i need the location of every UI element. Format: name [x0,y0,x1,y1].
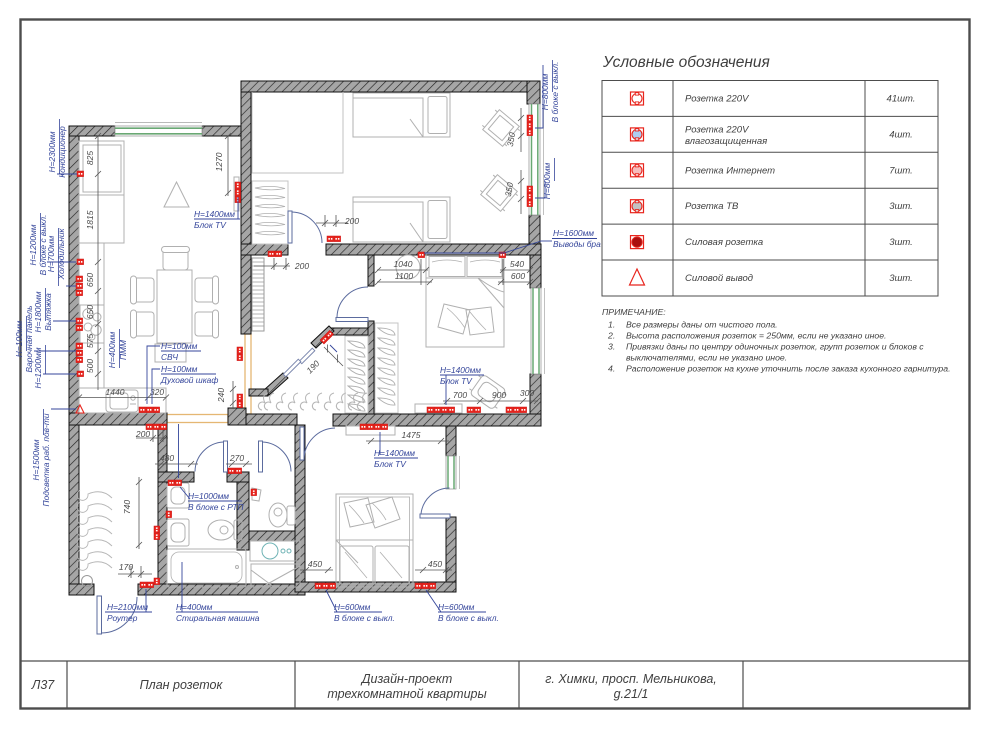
svg-text:700: 700 [453,390,467,400]
svg-text:g.21/1: g.21/1 [614,687,649,701]
svg-text:Л37: Л37 [31,678,56,692]
svg-text:900: 900 [492,390,506,400]
svg-text:В блоке с РТП: В блоке с РТП [188,502,245,512]
svg-text:170: 170 [119,562,133,572]
svg-text:Холодильник: Холодильник [56,228,66,281]
svg-text:Роутер: Роутер [107,613,138,623]
svg-text:H=800мм: H=800мм [540,74,550,111]
svg-text:СВЧ: СВЧ [161,352,178,362]
svg-text:В блоке с выкл.: В блоке с выкл. [550,62,560,123]
svg-text:влагозащищенная: влагозащищенная [685,136,767,147]
svg-text:240: 240 [216,388,226,403]
svg-text:Блок TV: Блок TV [374,459,407,469]
svg-text:H=100мм: H=100мм [161,364,198,374]
svg-text:Высота расположения розеток =: Высота расположения розеток = 250мм, есл… [626,331,886,341]
svg-text:H=700мм: H=700мм [46,236,56,273]
svg-text:1815: 1815 [85,210,95,229]
svg-text:41шт.: 41шт. [887,94,916,105]
svg-text:7шт.: 7шт. [889,165,913,176]
svg-text:3шт.: 3шт. [889,201,913,212]
svg-text:H=2100мм: H=2100мм [107,602,148,612]
svg-text:Силовая розетка: Силовая розетка [685,237,763,248]
svg-text:H=1400мм: H=1400мм [194,209,235,219]
svg-text:575: 575 [85,334,95,348]
svg-text:ПРИМЕЧАНИЕ:: ПРИМЕЧАНИЕ: [602,307,666,317]
svg-text:трехкомнатной квартиры: трехкомнатной квартиры [327,687,486,701]
svg-text:2.: 2. [607,331,615,341]
svg-text:650: 650 [85,305,95,319]
svg-text:1475: 1475 [402,430,421,440]
svg-text:H=100мм: H=100мм [14,321,24,358]
svg-text:650: 650 [85,273,95,287]
svg-text:Блок TV: Блок TV [194,220,227,230]
svg-text:H=1600мм: H=1600мм [553,228,594,238]
svg-text:270: 270 [229,453,244,463]
svg-text:1270: 1270 [214,152,224,171]
svg-text:Стиральная машина: Стиральная машина [176,613,260,623]
svg-text:Розетка Интернет: Розетка Интернет [685,165,775,176]
svg-text:H=600мм: H=600мм [334,602,371,612]
svg-text:1440: 1440 [106,387,125,397]
svg-text:Блок TV: Блок TV [440,376,473,386]
svg-text:350: 350 [505,131,517,147]
svg-text:Вытяжка: Вытяжка [43,293,53,331]
svg-text:350: 350 [503,181,515,197]
svg-text:Розетка 220V: Розетка 220V [685,125,750,136]
svg-text:H=100мм: H=100мм [161,341,198,351]
svg-text:План розеток: План розеток [140,678,224,692]
svg-text:200: 200 [294,261,309,271]
svg-text:H=1000мм: H=1000мм [188,491,229,501]
svg-text:Расположение розеток на кухне: Расположение розеток на кухне уточнить п… [626,364,951,374]
svg-text:450: 450 [308,559,322,569]
svg-text:190: 190 [304,358,321,375]
svg-text:Выводы бра: Выводы бра [553,239,601,249]
svg-text:H=2300мм: H=2300мм [47,131,57,172]
svg-text:500: 500 [85,359,95,373]
svg-text:H=1500мм: H=1500мм [31,439,41,480]
svg-text:3шт.: 3шт. [889,237,913,248]
svg-text:4шт.: 4шт. [889,129,913,140]
svg-text:3.: 3. [608,342,615,352]
svg-text:Духовой шкаф: Духовой шкаф [160,375,218,385]
svg-text:540: 540 [510,259,524,269]
svg-text:H=400мм: H=400мм [107,332,117,369]
svg-text:H=1800мм: H=1800мм [33,291,43,332]
svg-text:H=1200мм: H=1200мм [33,347,43,388]
svg-text:Силовой вывод: Силовой вывод [685,273,753,284]
svg-text:Привязки даны по центру одиноч: Привязки даны по центру одиночных розето… [626,342,924,352]
svg-text:300: 300 [520,388,534,398]
svg-text:1040: 1040 [394,259,413,269]
svg-text:г. Химки, просп. Мельникова,: г. Химки, просп. Мельникова, [545,672,717,686]
svg-text:3шт.: 3шт. [889,273,913,284]
svg-text:1.: 1. [608,320,615,330]
svg-text:H=800мм: H=800мм [542,163,552,200]
svg-text:740: 740 [122,500,132,514]
svg-text:Розетка ТВ: Розетка ТВ [685,201,739,212]
svg-text:Дизайн-проект: Дизайн-проект [360,672,453,686]
svg-text:1100: 1100 [395,271,414,281]
svg-text:200: 200 [135,429,150,439]
svg-text:Условные обозначения: Условные обозначения [602,54,770,71]
svg-text:600: 600 [511,271,525,281]
svg-text:4.: 4. [608,364,615,374]
svg-text:Все размеры даны от чистого по: Все размеры даны от чистого пола. [626,320,778,330]
svg-text:H=1200мм: H=1200мм [28,224,38,265]
svg-text:H=600мм: H=600мм [438,602,475,612]
svg-text:450: 450 [428,559,442,569]
svg-text:480: 480 [160,453,174,463]
svg-text:H=1400мм: H=1400мм [440,365,481,375]
svg-text:Подсветка раб. пов-ти: Подсветка раб. пов-ти [41,413,51,506]
svg-text:В блоке с выкл.: В блоке с выкл. [438,613,499,623]
svg-text:H=400мм: H=400мм [176,602,213,612]
svg-text:выключателями, если не указано: выключателями, если не указано иное. [626,353,787,363]
svg-text:200: 200 [344,216,359,226]
svg-text:В блоке с выкл.: В блоке с выкл. [334,613,395,623]
svg-text:Розетка 220V: Розетка 220V [685,94,750,105]
svg-text:Кондиционер: Кондиционер [57,126,67,178]
svg-text:825: 825 [85,151,95,165]
